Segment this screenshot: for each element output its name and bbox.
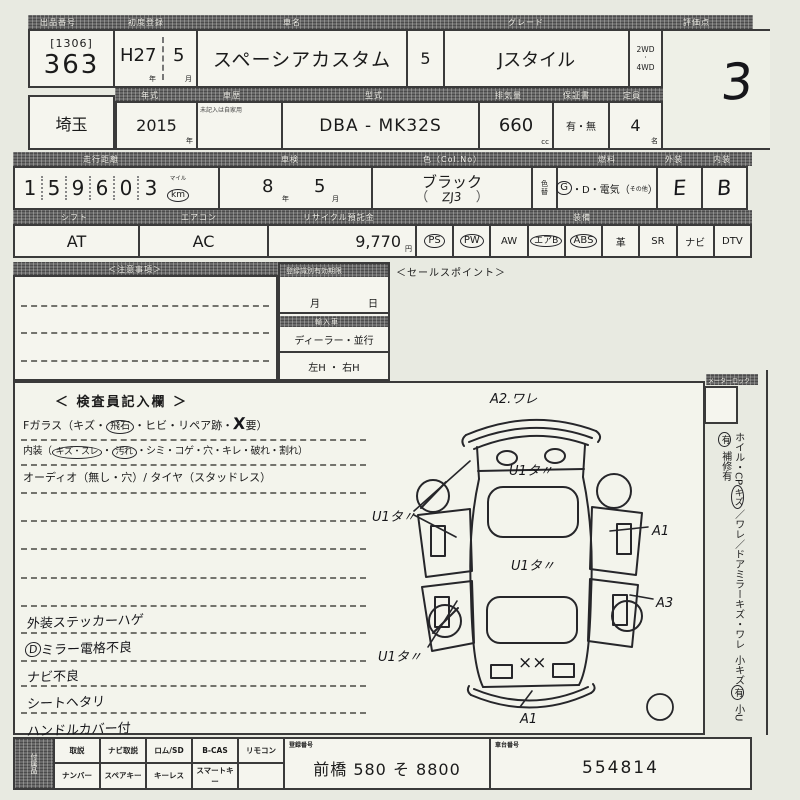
interior-header: 内装 [713,154,731,165]
score-header: 評価点 [683,17,710,28]
wheel-mirror-notes: ホイル・CPキズ／ワレ／ドアミラーキズ・ワレ小キズ有小U有補修有 [718,432,744,732]
bottom-table: 付属品 取説 ナビ取説 ロム/SD B-CAS リモコン ナンバー スペアキー … [13,737,758,790]
year-header: 年式 [141,90,159,101]
audio-tire-line: オーディオ（無し・穴）/ タイヤ（スタッドレス） [23,469,271,485]
equip-sunroof: SR [638,224,677,258]
capacity: 4 [630,116,640,135]
wheel-scratch-circled: キズ [731,485,744,509]
year-unit: 年 [186,136,193,146]
note-navi: ナビ不良 [26,665,79,686]
mile-label: マイル [167,174,189,182]
accessories-header-cell: 付属品 [13,737,55,790]
acc-keyless: キーレス [147,764,193,789]
drive-2wd: 2WD [637,44,655,55]
odometer-digit: 9 [67,176,91,200]
inspector-line [21,439,366,441]
paren-close: ） [476,190,489,205]
history-cell: 未記入は自家用 [196,101,283,150]
equip-leather: 革 [601,224,640,258]
color-name: ブラック [422,175,482,190]
exterior-grade-cell: E [656,166,703,210]
band3-row: 1 5 9 6 0 3 マイル km 8 年 5 月 ブラック （ZJ3） 色替… [13,166,752,210]
shift-cell: AT [13,224,140,258]
equip-ps: PS [415,224,454,258]
model-year-cell: 2015 年 [115,101,198,150]
damage-u1-rear: U1タ〃 [378,650,422,665]
shaken-month: 5 [314,176,325,197]
interior-grade: B [716,176,732,201]
recycle-fee: 9,770 [355,232,401,251]
shaken-year: 8 [262,176,273,197]
notice-line [21,332,269,334]
color-cell: ブラック （ZJ3） [371,166,533,210]
exterior-grade: E [672,176,687,201]
meter-check-box [704,386,738,424]
equip-pw: PW [452,224,491,258]
sales-point-header: ＜セールスポイント＞ [396,264,506,279]
glass-flying-stone: 飛石 [106,420,134,434]
auction-score: 3 [719,52,755,111]
band4-row: AT AC 9,770 円 PS PW AW エアB ABS 革 SR ナビ D… [13,224,752,258]
exterior-header: 外装 [665,154,683,165]
color-change-cell: 色替 [531,166,558,210]
acc-remote: リモコン [239,739,283,762]
inspector-line [21,632,366,634]
month-unit: 月 [332,194,339,204]
note-seat: シートヘタリ [26,691,105,713]
equip-airbag: エアB [527,224,566,258]
lot-code: [1306] [50,37,93,50]
notice-line [21,305,269,307]
inspector-line [21,712,366,714]
score-cell: 3 [661,29,770,150]
lot-number: 363 [44,50,100,80]
first-registration-cell: H27 5 年 月 [113,29,198,88]
damage-xx-marks: ×× [518,653,547,673]
odometer-digit: 0 [115,176,139,200]
interior-scratch-wear: キズ・スレ [52,446,103,459]
history-header: 車歴 [223,90,241,101]
import-header: 輸入車 [315,317,339,327]
notice-header: ＜注意事項＞ [108,264,162,275]
drive-dot: ・ [643,55,648,63]
damage-a3: A3 [655,596,673,611]
band4-header-strip: シフト エアコン リサイクル預託金 装備 [13,210,752,224]
small-dent-yes-circled: 有 [718,432,731,447]
acc-rom-sd: ロム/SD [147,739,193,762]
drive-type-cell: 2WD ・ 4WD [628,29,663,88]
glass-x-mark: X [232,414,246,433]
inspector-line [21,685,366,687]
acc-navi-manual: ナビ取説 [101,739,147,762]
band1-header-strip: 出品番号 初度登録 車名 グレード 評価点 [28,15,753,29]
inspector-line [21,548,366,550]
note-mirror: Dミラー電格不良 [25,638,133,657]
meter-header-strip: メーターロック [706,374,758,385]
accessories-row-1: 取説 ナビ取説 ロム/SD B-CAS リモコン [55,739,283,764]
band1-row: [1306] 363 H27 5 年 月 スペーシアカスタム 5 Jスタイル 2… [28,29,770,88]
band3-header-strip: 走行距離 車検 色（Col.No） 燃料 外装 内装 [13,152,752,166]
acc-manual: 取説 [55,739,101,762]
warranty-cell: 有・無 [552,101,610,150]
odometer-digit: 1 [19,176,43,200]
equip-aw: AW [489,224,528,258]
notice-line [21,360,269,362]
drive-4wd: 4WD [637,62,655,73]
day-label: 日 [368,295,378,310]
inspector-line [21,520,366,522]
band2-row: 2015 年 未記入は自家用 DBA - MK32S 660 cc 有・無 4 … [115,101,663,150]
displacement: 660 [499,115,533,136]
inspector-line [21,492,366,494]
interior-dirt: 汚れ [112,446,137,459]
meter-header: メーターロック [708,376,750,385]
import-type: ディーラー・並行 [280,327,388,353]
acc-number: ナンバー [55,764,101,789]
import-header-strip: 輸入車 [280,316,388,327]
firstreg-divider [162,37,164,80]
notice-header-strip: ＜注意事項＞ [13,262,278,275]
warranty-header: 保証書 [563,90,590,101]
fuel-gasoline: G [556,181,572,195]
inspector-line [21,464,366,466]
inspector-line [21,577,366,579]
regno-header: 登録番号 [289,740,313,749]
interior-line: 内装（キズ・スレ・汚れ・シミ・コゲ・穴・キレ・破れ・割れ） [23,442,308,459]
validity-date-row: 月 日 [280,277,388,314]
inspector-line [21,605,366,607]
fuel-header: 燃料 [598,154,616,165]
chassis-header: 車台番号 [495,740,519,749]
notice-box [13,275,278,381]
acc-bcas: B-CAS [193,739,239,762]
damage-a1-bottom: A1 [519,712,537,727]
damage-a2-crack: A2.ワレ [489,392,537,407]
acc-smart-key: スマートキー [193,764,239,789]
damage-u1-left: U1タ〃 [372,510,416,525]
shaken-header: 車検 [281,154,299,165]
shift-header: シフト [61,212,88,223]
region-cell: 埼玉 [28,95,115,150]
color-code: ZJ3 [428,190,476,204]
registration-validity-box: 登録識別有効期限 月 日 輸入車 ディーラー・並行 左H ・ 右H [278,262,390,381]
model-code: DBA - MK32S [281,101,480,150]
paren-open: （ [415,190,428,205]
shaken-cell: 8 年 5 月 [218,166,373,210]
km-unit-wrap: マイル km [167,174,189,202]
yen-unit: 円 [405,244,412,254]
auction-sheet: { "colors":{"paper":"#e8eae1","cell":"#f… [0,0,800,800]
damage-u1-hood: U1タ〃 [509,464,553,479]
firstreg-year: H27 [120,45,156,66]
month-label: 月 [310,295,320,310]
accessories-row-2: ナンバー スペアキー キーレス スマートキー [55,764,283,789]
firstreg-month: 5 [173,45,184,66]
acc-spare-key: スペアキー [101,764,147,789]
grade-cell: Jスタイル [443,29,630,88]
odometer-digit: 6 [91,176,115,200]
fuel-options: ・D・電気（ [572,181,630,196]
note-mirror-prefix: D [24,642,42,658]
interior-grade-cell: B [701,166,748,210]
chassis-number: 554814 [582,758,659,778]
capacity-cell: 4 名 [608,101,663,150]
note-sticker: 外装ステッカーハゲ [26,609,144,632]
year-unit: 年 [149,74,156,84]
model-header: 型式 [365,90,383,101]
band2-header-strip: 年式 車歴 型式 排気量 保証書 定員 [115,88,663,101]
equip-abs: ABS [564,224,603,258]
lot-cell: [1306] 363 [28,29,115,88]
cc-unit: cc [541,138,549,146]
damage-a1-right: A1 [651,524,669,539]
month-unit: 月 [185,74,192,84]
odometer-digit: 3 [139,176,163,200]
grade-header: グレード [508,17,544,28]
color-header: 色（Col.No） [423,154,482,165]
door-count: 5 [406,29,445,88]
recycle-header: リサイクル預託金 [303,212,375,223]
car-name: スペーシアカスタム [196,29,408,88]
history-note: 未記入は自家用 [200,105,242,114]
firstreg-header: 初度登録 [128,17,164,28]
car-diagram: A2.ワレ U1タ〃 U1タ〃 U1タ〃 A1 A3 U1タ〃 ×× A1 [370,385,710,735]
small-scratch-yes-circled: 有 [731,685,744,700]
ac-cell: AC [138,224,269,258]
ac-header: エアコン [181,212,217,223]
inspector-title: ＜ 検査員記入欄 ＞ [55,391,188,410]
disp-header: 排気量 [495,90,522,101]
damage-u1-roof: U1タ〃 [511,559,555,574]
acc-empty [239,764,283,789]
glass-line: Fガラス（キズ・飛石・ヒビ・リペア跡・X要） [23,414,267,434]
model-year: 2015 [136,116,177,135]
recycle-fee-cell: 9,770 円 [267,224,417,258]
lot-header: 出品番号 [40,17,76,28]
inspector-line [21,660,366,662]
odometer-digit: 5 [43,176,67,200]
chassis-number-cell: 車台番号 554814 [489,737,752,790]
right-column-border [766,370,768,735]
year-unit: 年 [282,194,289,204]
odometer-cell: 1 5 9 6 0 3 マイル km [13,166,220,210]
fuel-cell: G・D・電気（その他） [556,166,658,210]
displacement-cell: 660 cc [478,101,554,150]
equip-dtv: DTV [713,224,752,258]
color-code-wrap: （ZJ3） [415,191,488,204]
accessories-grid: 取説 ナビ取説 ロム/SD B-CAS リモコン ナンバー スペアキー キーレス… [53,737,285,790]
equip-navi: ナビ [676,224,715,258]
handle-position: 左H ・ 右H [280,353,388,379]
km-label: km [167,189,189,202]
validity-header: 登録識別有効期限 [286,266,342,276]
registration-number-cell: 登録番号 前橋 580 そ 8800 [283,737,491,790]
odometer-header: 走行距離 [83,154,119,165]
registration-number: 前橋 580 そ 8800 [313,756,461,780]
fuel-other: その他 [630,184,648,193]
capacity-header: 定員 [623,90,641,101]
persons-unit: 名 [651,136,658,146]
equip-header: 装備 [573,212,591,223]
name-header: 車名 [283,17,301,28]
validity-header-strip: 登録識別有効期限 [280,264,388,277]
